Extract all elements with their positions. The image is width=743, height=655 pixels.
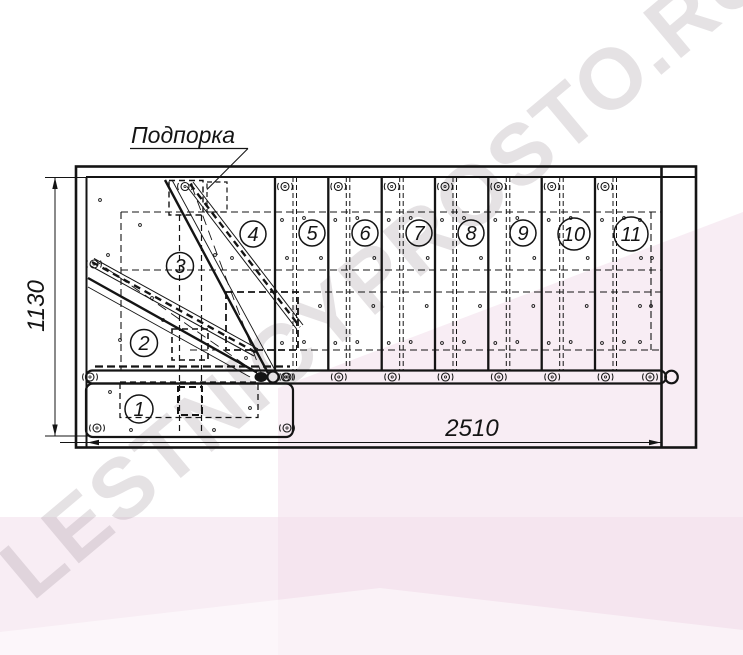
step-bubble-8: 8 — [458, 220, 484, 246]
dim-height-label: 1130 — [23, 280, 50, 332]
step-label-3: 3 — [174, 256, 185, 278]
staircase-plan-page: LESTNICYPROSTO.RU — [0, 0, 743, 655]
step-bubble-9: 9 — [510, 220, 536, 246]
fastener-screw-icons — [83, 183, 658, 433]
screw-icon — [278, 183, 293, 191]
step-label-6: 6 — [359, 223, 371, 245]
step-bubble-2: 2 — [131, 330, 158, 357]
straight-flight-risers — [275, 177, 617, 371]
stringer-junction-pin — [255, 372, 268, 382]
step-bubble-1: 1 — [125, 395, 153, 423]
step-bubble-6: 6 — [352, 220, 378, 246]
step-label-1: 1 — [133, 399, 144, 421]
drawing-canvas: 1234567891011 1130 2510 Подпорка — [0, 0, 743, 655]
step-label-2: 2 — [137, 333, 149, 355]
screw-icon — [385, 373, 400, 381]
step-label-10: 10 — [563, 224, 585, 246]
first-step-platform — [86, 384, 293, 438]
step-label-7: 7 — [413, 223, 425, 245]
screw-icon — [598, 183, 613, 191]
wall-outline — [76, 167, 696, 448]
screw-icon — [544, 183, 559, 191]
step-bubble-11: 11 — [614, 217, 648, 251]
screw-icon — [598, 373, 613, 381]
step-label-11: 11 — [621, 224, 642, 246]
step-label-5: 5 — [306, 223, 318, 245]
step-bubble-4: 4 — [240, 221, 266, 247]
screw-icon — [331, 183, 346, 191]
step-bubble-5: 5 — [299, 220, 325, 246]
screw-icon — [90, 424, 105, 432]
arrow-left-icon — [88, 440, 100, 445]
support-post-outline — [169, 181, 227, 432]
dimension-horizontal: 2510 — [60, 415, 661, 445]
step-number-bubbles: 1234567891011 — [125, 217, 648, 423]
dim-length-label: 2510 — [444, 415, 499, 442]
dimension-vertical: 1130 — [23, 177, 88, 436]
arrow-right-icon — [649, 440, 661, 445]
screw-icon — [331, 373, 346, 381]
screw-icon — [83, 373, 98, 381]
step-bubble-3: 3 — [167, 253, 194, 280]
support-callout: Подпорка — [130, 122, 248, 190]
winder-risers-and-stringers — [88, 180, 303, 377]
screw-icon — [643, 373, 658, 381]
step-label-4: 4 — [247, 224, 258, 246]
step-label-8: 8 — [465, 223, 476, 245]
screw-icon — [438, 183, 453, 191]
screw-icon — [178, 183, 193, 191]
step-bubble-10: 10 — [558, 218, 590, 250]
step-label-9: 9 — [517, 223, 528, 245]
screw-icon — [384, 183, 399, 191]
arrow-down-icon — [52, 425, 57, 437]
screw-icon — [491, 373, 506, 381]
screw-icon — [491, 183, 506, 191]
screw-icon — [438, 373, 453, 381]
screw-icon — [545, 373, 560, 381]
arrow-up-icon — [52, 178, 57, 190]
support-callout-label: Подпорка — [131, 122, 235, 148]
step-bubble-7: 7 — [406, 220, 432, 246]
